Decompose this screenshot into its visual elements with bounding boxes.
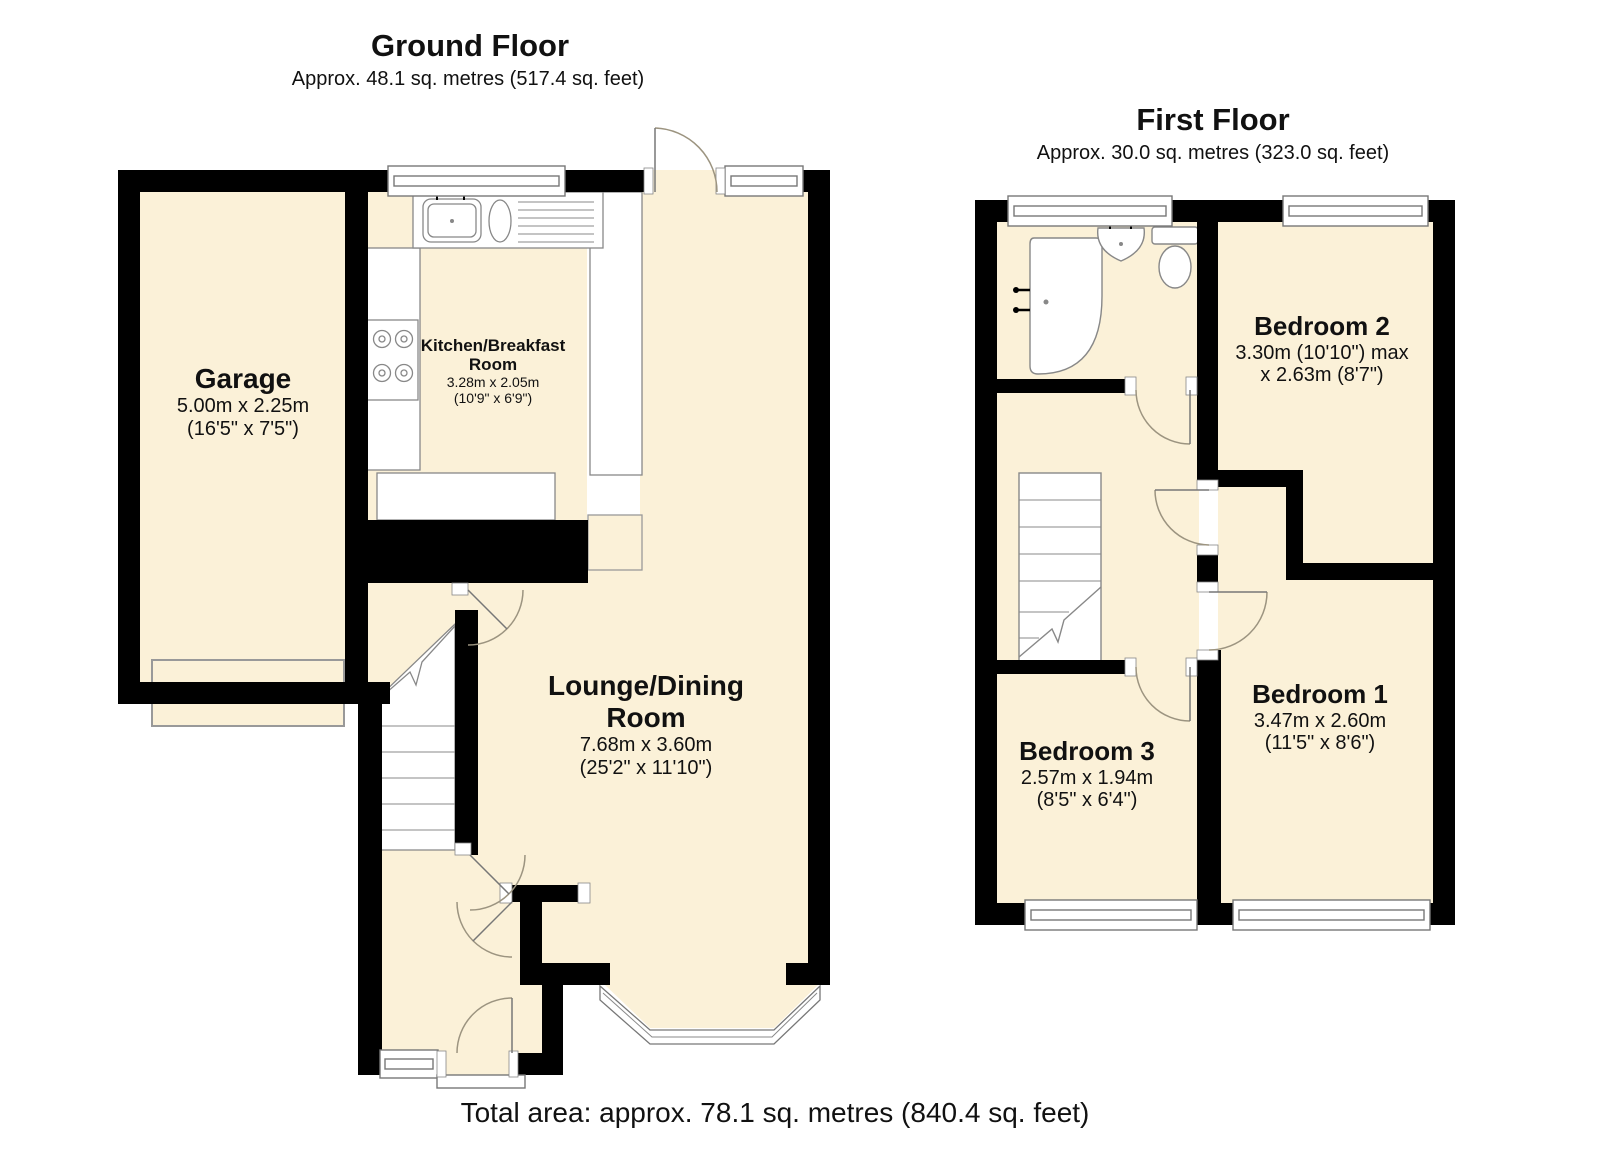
bathroom-window [1008,196,1172,226]
bath-drain [1044,300,1049,305]
ground-floor-title: Ground Floor [371,28,569,63]
hall-front-window [380,1050,438,1078]
bedroom2-window [1283,196,1428,226]
lounge-label: Lounge/Dining Room 7.68m x 3.60m (25'2" … [548,670,744,779]
bedroom1-label: Bedroom 1 3.47m x 2.60m (11'5" x 8'6") [1252,680,1388,755]
floorplan-drawing [0,0,1600,1163]
lounge-top-area [640,192,808,520]
kitchen-size-imperial: (10'9" x 6'9") [421,391,566,407]
bedroom2-size-imperial: x 2.63m (8'7") [1235,364,1408,387]
bedroom2-label: Bedroom 2 3.30m (10'10") max x 2.63m (8'… [1235,312,1408,387]
garage-label: Garage 5.00m x 2.25m (16'5" x 7'5") [177,363,309,441]
bedroom3-size-imperial: (8'5" x 6'4") [1019,789,1155,812]
bedroom1-window [1233,900,1430,930]
toilet-bowl [1159,246,1191,288]
lounge-size-imperial: (25'2" x 11'10") [548,757,744,780]
ground-floor-plan [118,128,830,1088]
kitchen-name-line2: Room [421,355,566,374]
first-floor-plan [975,196,1455,930]
lounge-back-window [725,166,803,196]
floorplan-page: Ground Floor Approx. 48.1 sq. metres (51… [0,0,1600,1163]
bedroom1-size-imperial: (11'5" x 8'6") [1252,732,1388,755]
bedroom2-name: Bedroom 2 [1235,312,1408,342]
kitchen-size-metric: 3.28m x 2.05m [421,375,566,391]
sink-drain [450,219,454,223]
kitchen-name-line1: Kitchen/Breakfast [421,336,566,355]
bedroom1-name: Bedroom 1 [1252,680,1388,710]
ground-floor-subtitle: Approx. 48.1 sq. metres (517.4 sq. feet) [292,68,644,91]
ground-floor-rooms [140,192,818,1053]
hob [366,320,418,400]
kitchen-cupboard [377,473,555,520]
lounge-name-line2: Room [548,702,744,734]
lounge-name-line1: Lounge/Dining [548,670,744,702]
bedroom2-size-metric: 3.30m (10'10") max [1235,342,1408,365]
garage-size-metric: 5.00m x 2.25m [177,395,309,418]
basin-drain [1119,242,1123,246]
bedroom1-size-metric: 3.47m x 2.60m [1252,710,1388,733]
bedroom3-label: Bedroom 3 2.57m x 1.94m (8'5" x 6'4") [1019,737,1155,812]
bedroom3-window [1025,900,1197,930]
first-floor-title: First Floor [1136,102,1289,137]
lounge-size-metric: 7.68m x 3.60m [548,734,744,757]
kitchen-window [388,166,565,196]
bedroom2-room-ext [1286,222,1433,563]
garage-size-imperial: (16'5" x 7'5") [177,418,309,441]
first-floor-subtitle: Approx. 30.0 sq. metres (323.0 sq. feet) [1037,142,1389,165]
garage-name: Garage [177,363,309,395]
sink-oval [489,200,511,242]
chimney-breast [588,515,642,570]
bedroom3-name: Bedroom 3 [1019,737,1155,767]
kitchen-label: Kitchen/Breakfast Room 3.28m x 2.05m (10… [421,336,566,407]
bedroom3-size-metric: 2.57m x 1.94m [1019,767,1155,790]
total-area-text: Total area: approx. 78.1 sq. metres (840… [461,1097,1090,1129]
toilet-cistern [1152,227,1198,244]
